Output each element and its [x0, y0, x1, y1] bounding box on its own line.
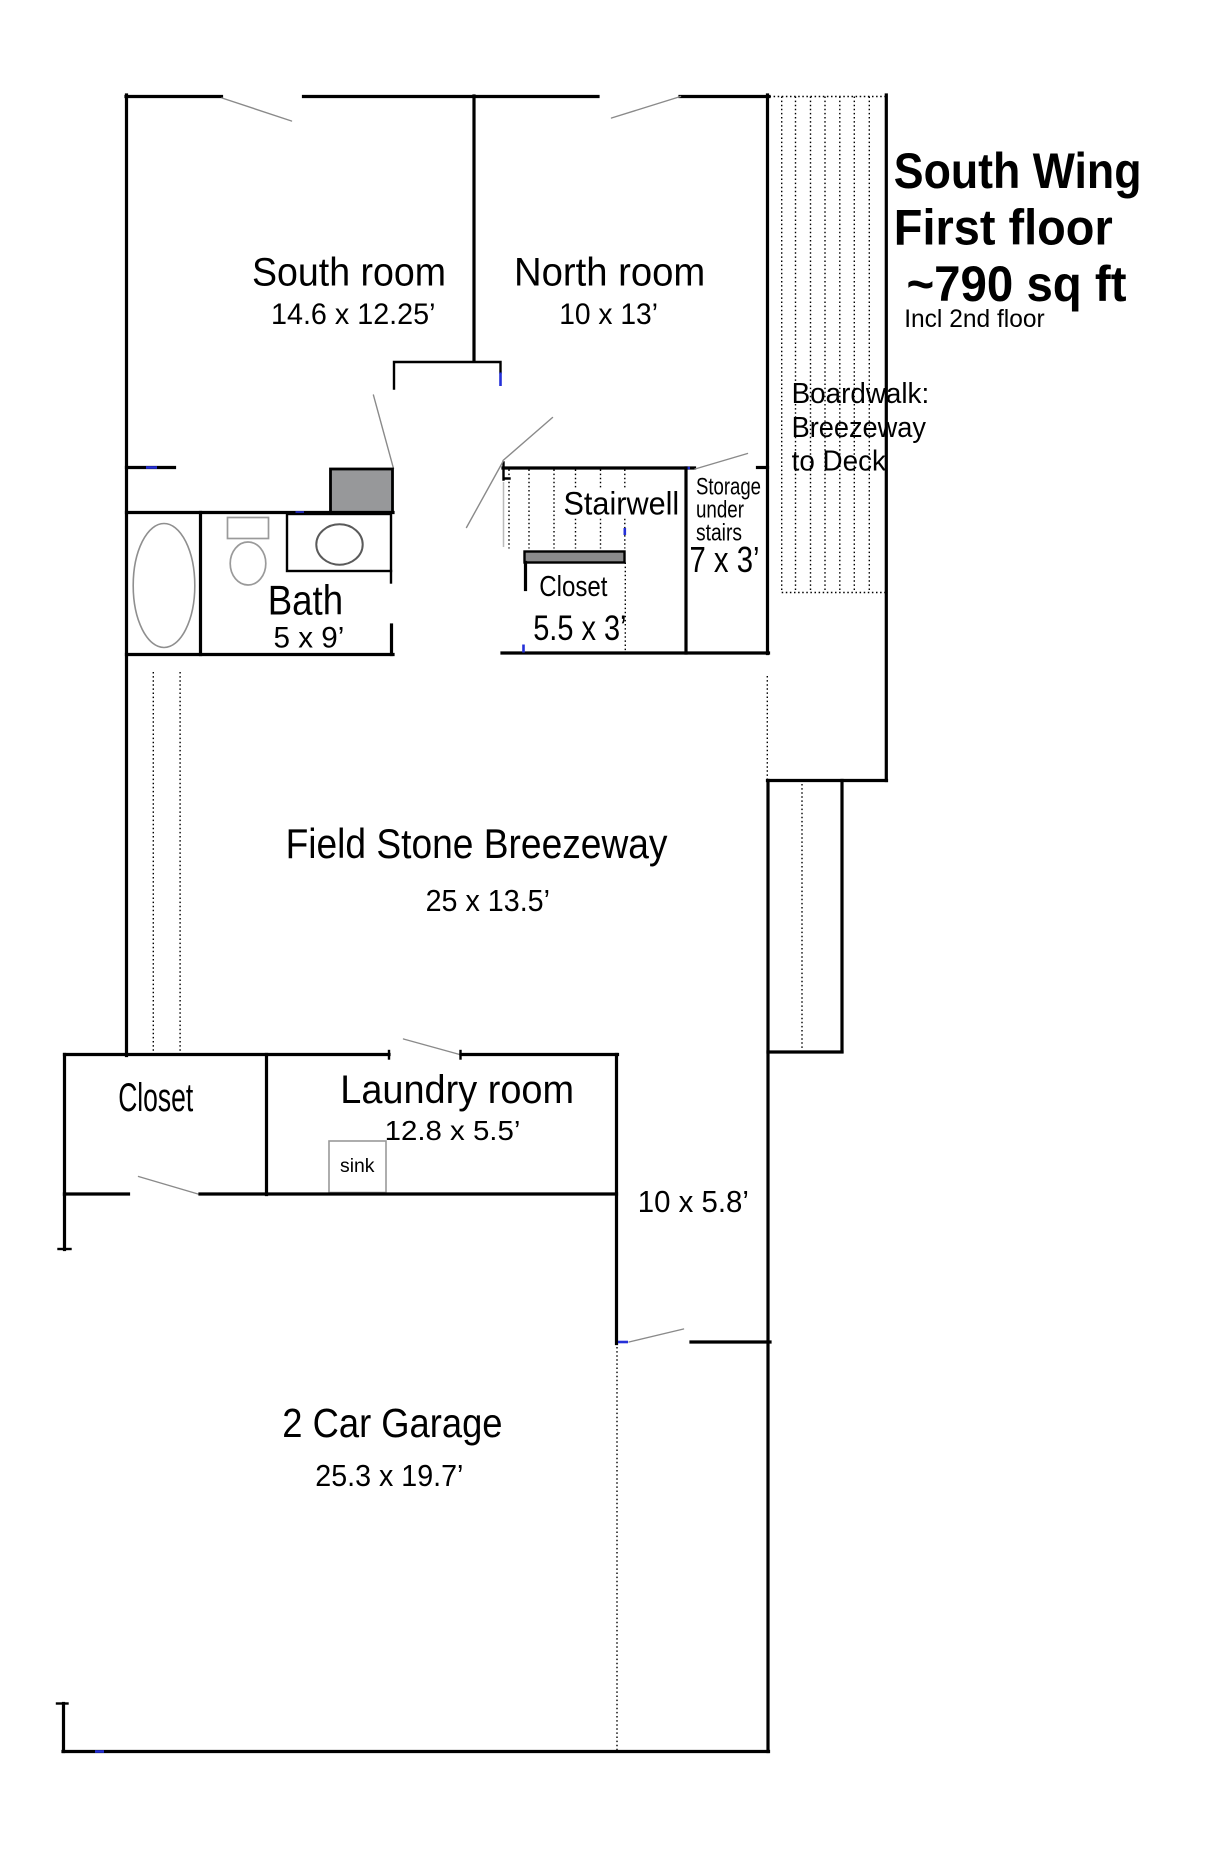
- svg-text:Field Stone Breezeway: Field Stone Breezeway: [286, 820, 668, 867]
- svg-text:25 x 13.5’: 25 x 13.5’: [426, 883, 550, 918]
- svg-text:Boardwalk:: Boardwalk:: [792, 378, 930, 410]
- svg-text:2 Car Garage: 2 Car Garage: [282, 1400, 502, 1446]
- svg-text:5.5 x 3’: 5.5 x 3’: [533, 609, 626, 648]
- svg-text:to Deck: to Deck: [792, 446, 887, 478]
- svg-text:South Wing: South Wing: [894, 143, 1142, 199]
- svg-text:South room: South room: [252, 251, 446, 295]
- svg-text:Incl 2nd floor: Incl 2nd floor: [904, 305, 1044, 333]
- svg-text:Closet: Closet: [118, 1076, 193, 1120]
- svg-text:Bath: Bath: [268, 577, 343, 624]
- svg-text:14.6 x 12.25’: 14.6 x 12.25’: [271, 298, 436, 331]
- svg-text:~790 sq ft: ~790 sq ft: [907, 256, 1127, 312]
- svg-text:Breezeway: Breezeway: [792, 412, 927, 444]
- svg-text:Stairwell: Stairwell: [564, 486, 680, 522]
- svg-text:North room: North room: [514, 251, 705, 295]
- svg-text:25.3 x 19.7’: 25.3 x 19.7’: [315, 1458, 463, 1493]
- svg-text:5 x 9’: 5 x 9’: [274, 622, 345, 655]
- svg-text:First floor: First floor: [894, 200, 1113, 256]
- svg-text:Closet: Closet: [539, 571, 607, 603]
- svg-text:Laundry room: Laundry room: [340, 1068, 574, 1112]
- svg-text:10 x 13’: 10 x 13’: [559, 298, 658, 331]
- svg-text:sink: sink: [340, 1156, 375, 1177]
- svg-text:7 x 3’: 7 x 3’: [690, 539, 760, 580]
- svg-text:10 x 5.8’: 10 x 5.8’: [638, 1184, 749, 1219]
- svg-text:12.8 x 5.5’: 12.8 x 5.5’: [385, 1115, 521, 1146]
